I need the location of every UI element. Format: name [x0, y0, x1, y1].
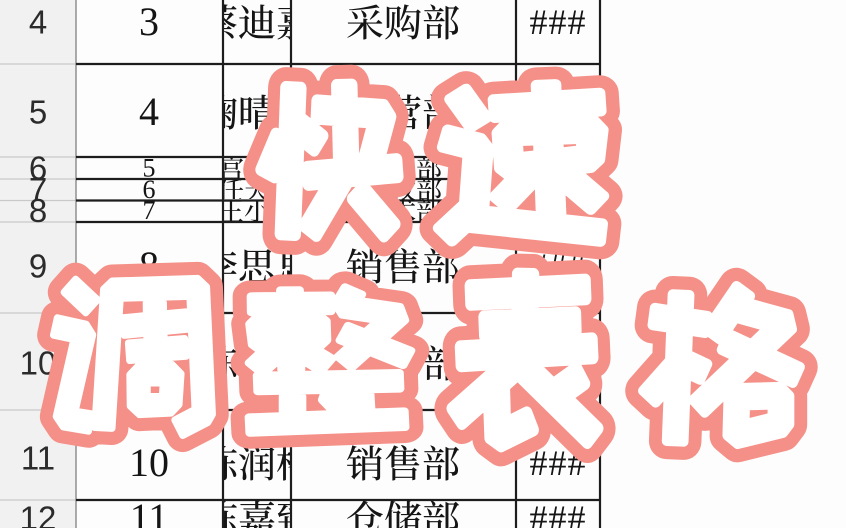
svg-text:7: 7 — [143, 196, 156, 225]
svg-text:11: 11 — [130, 495, 169, 528]
svg-text:8: 8 — [29, 192, 47, 229]
svg-text:4: 4 — [139, 89, 159, 134]
svg-text:10: 10 — [129, 440, 169, 485]
svg-text:###: ### — [530, 498, 587, 528]
svg-text:9: 9 — [29, 248, 47, 285]
svg-text:5: 5 — [29, 94, 47, 131]
svg-text:3: 3 — [139, 0, 159, 44]
svg-text:4: 4 — [29, 4, 47, 41]
svg-text:12: 12 — [20, 500, 57, 528]
svg-text:11: 11 — [21, 440, 55, 477]
svg-text:###: ### — [530, 2, 587, 42]
